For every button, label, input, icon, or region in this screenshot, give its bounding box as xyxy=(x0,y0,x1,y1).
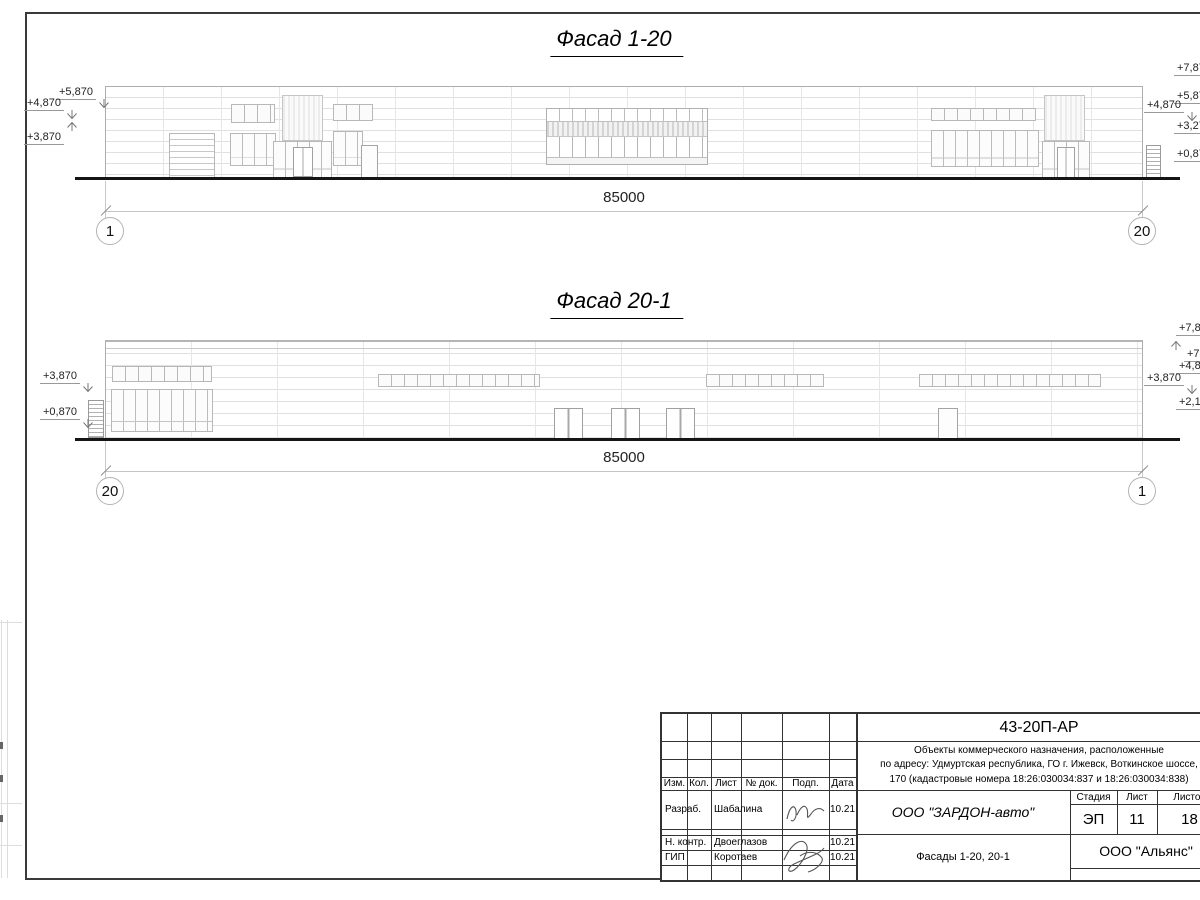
sheet-label: Лист xyxy=(1117,790,1157,804)
margin-divider xyxy=(0,622,22,623)
stage-value: ЭП xyxy=(1070,804,1117,834)
margin-text-mark xyxy=(0,775,3,782)
elevation-mark: +2,1 xyxy=(1176,396,1200,410)
ground-line xyxy=(75,438,1180,441)
title-block-line xyxy=(662,741,856,742)
window-band xyxy=(333,104,373,121)
document-code: 43-20П-АР xyxy=(856,714,1200,741)
sheets-value: 18 xyxy=(1157,804,1200,834)
elevation-mark: +3,870 xyxy=(24,131,76,145)
sheet-title: Фасады 1-20, 20-1 xyxy=(856,834,1070,880)
staff-date: 10.21 xyxy=(829,790,856,829)
elevation-mark: +3,870 xyxy=(40,370,92,384)
signature xyxy=(780,830,828,878)
axis-marker-20: 20 xyxy=(1128,217,1156,245)
elevation-mark: +3,870 xyxy=(1144,372,1196,386)
side-door xyxy=(361,145,378,178)
elevation-mark: +0,870 xyxy=(40,406,92,420)
curtain-wall-base xyxy=(547,157,707,164)
column-header: Дата xyxy=(829,777,856,790)
window-ribbon xyxy=(706,374,824,387)
project-description-line: по адресу: Удмуртская республика, ГО г. … xyxy=(880,758,1198,773)
elevation-mark: +0,87 xyxy=(1174,148,1200,162)
roller-gate xyxy=(169,133,215,178)
entrance-glazing xyxy=(273,141,332,178)
extension-line xyxy=(105,441,106,479)
storefront-glazing xyxy=(931,130,1039,167)
sheets-label: Листов xyxy=(1157,790,1200,804)
margin-divider xyxy=(0,845,22,846)
facade-1-20-title: Фасад 1-20 xyxy=(550,26,683,57)
louver-panel xyxy=(1044,95,1085,141)
contractor-company: ООО "Альянс" xyxy=(1070,834,1200,868)
frame-top xyxy=(25,12,1200,14)
project-description-line: 170 (кадастровые номера 18:26:030034:837… xyxy=(889,773,1188,788)
axis-marker-1: 1 xyxy=(96,217,124,245)
extension-line xyxy=(1142,441,1143,479)
window-band xyxy=(231,104,275,123)
dimension-value: 85000 xyxy=(574,449,674,466)
curtain-wall-stripe-band xyxy=(547,122,707,137)
curtain-wall xyxy=(546,108,708,165)
axis-marker-20: 20 xyxy=(96,477,124,505)
sheet-value: 11 xyxy=(1117,804,1157,834)
elevation-arrow-up-icon xyxy=(1170,338,1182,350)
signature xyxy=(784,797,827,827)
project-description: Объекты коммерческого назначения, распол… xyxy=(856,741,1200,790)
entrance-door xyxy=(1057,147,1075,178)
double-door xyxy=(554,408,583,440)
entrance-glazing xyxy=(1042,141,1090,178)
dimension-line xyxy=(105,211,1143,212)
title-block-line xyxy=(662,759,856,760)
elevation-mark: +7,87 xyxy=(1174,62,1200,76)
window xyxy=(230,133,276,166)
staff-name: Шабалина xyxy=(711,790,782,829)
client-company: ООО "ЗАРДОН-авто" xyxy=(856,790,1070,834)
staff-role: Разраб. xyxy=(662,790,711,829)
ground-line xyxy=(75,177,1180,180)
staff-name: Коротаев xyxy=(711,850,782,865)
margin-text-mark xyxy=(0,815,3,822)
curtain-wall-glazing xyxy=(547,137,707,157)
window-band xyxy=(112,366,212,382)
facade-1-20-drawing xyxy=(105,86,1143,178)
elevation-mark: +3,27 xyxy=(1174,120,1200,134)
staff-role: Н. контр. xyxy=(662,835,711,850)
paper-edge-line xyxy=(1,620,2,878)
column-header: Подп. xyxy=(782,777,829,790)
dimension-value: 85000 xyxy=(574,189,674,206)
title-block-line xyxy=(1070,868,1200,869)
column-header: Кол. xyxy=(687,777,711,790)
axis-marker-1: 1 xyxy=(1128,477,1156,505)
paper-edge-line xyxy=(7,620,8,878)
elevation-mark: +4,870 xyxy=(1144,99,1196,113)
title-block: 43-20П-АР Объекты коммерческого назначен… xyxy=(660,712,1200,882)
staff-date: 10.21 xyxy=(829,835,856,850)
elevation-mark: +4,870 xyxy=(24,97,76,111)
margin-divider xyxy=(0,803,22,804)
parapet-line xyxy=(106,348,1142,349)
side-door xyxy=(938,408,958,440)
staff-role: ГИП xyxy=(662,850,711,865)
elevation-arrow-down-icon xyxy=(98,99,110,111)
entrance-door xyxy=(293,147,313,177)
window-ribbon xyxy=(378,374,540,387)
staff-name: Двоеглазов xyxy=(711,835,782,850)
extension-line xyxy=(1142,181,1143,219)
ladder-element xyxy=(1146,145,1161,178)
staff-date: 10.21 xyxy=(829,850,856,865)
facade-20-1-title: Фасад 20-1 xyxy=(550,288,683,319)
window-band xyxy=(931,108,1036,121)
double-door xyxy=(611,408,640,440)
column-header: № док. xyxy=(741,777,782,790)
dimension-line xyxy=(105,471,1143,472)
curtain-wall-top-band xyxy=(547,109,707,122)
project-description-line: Объекты коммерческого назначения, распол… xyxy=(914,744,1164,759)
facade-1-20-title-text: Фасад 1-20 xyxy=(550,26,683,57)
stage-label: Стадия xyxy=(1070,790,1117,804)
double-door xyxy=(666,408,695,440)
storefront-glazing xyxy=(111,389,213,432)
extension-line xyxy=(105,181,106,219)
drawing-sheet: { "facade1": { "title": "Фасад 1-20", "d… xyxy=(0,0,1200,900)
elevation-arrow-up-icon xyxy=(66,119,78,131)
window-ribbon xyxy=(919,374,1101,387)
elevation-arrow-down-icon xyxy=(82,383,94,395)
window xyxy=(333,131,363,166)
margin-text-mark xyxy=(0,742,3,749)
louver-panel xyxy=(282,95,323,141)
elevation-mark: +7,8 xyxy=(1176,322,1200,336)
facade-20-1-drawing xyxy=(105,340,1143,439)
column-header: Лист xyxy=(711,777,741,790)
column-header: Изм. xyxy=(662,777,687,790)
elevation-arrow-down-icon xyxy=(82,419,94,431)
facade-20-1-title-text: Фасад 20-1 xyxy=(550,288,683,319)
